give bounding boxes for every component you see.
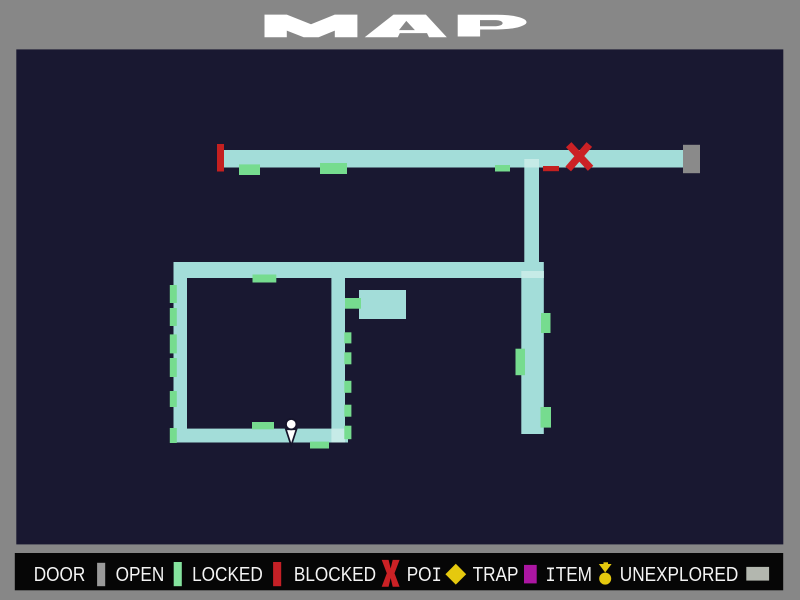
svg-text:POI: POI bbox=[407, 563, 442, 588]
svg-text:OPEN: OPEN bbox=[116, 563, 165, 586]
svg-text:LOCKED: LOCKED bbox=[192, 563, 263, 586]
svg-text:UNEXPLORED: UNEXPLORED bbox=[620, 563, 738, 586]
svg-text:ITEM: ITEM bbox=[545, 563, 592, 588]
svg-text:TRAP: TRAP bbox=[473, 563, 519, 586]
svg-text:DOOR: DOOR bbox=[34, 563, 86, 586]
svg-text:BLOCKED: BLOCKED bbox=[294, 563, 376, 586]
